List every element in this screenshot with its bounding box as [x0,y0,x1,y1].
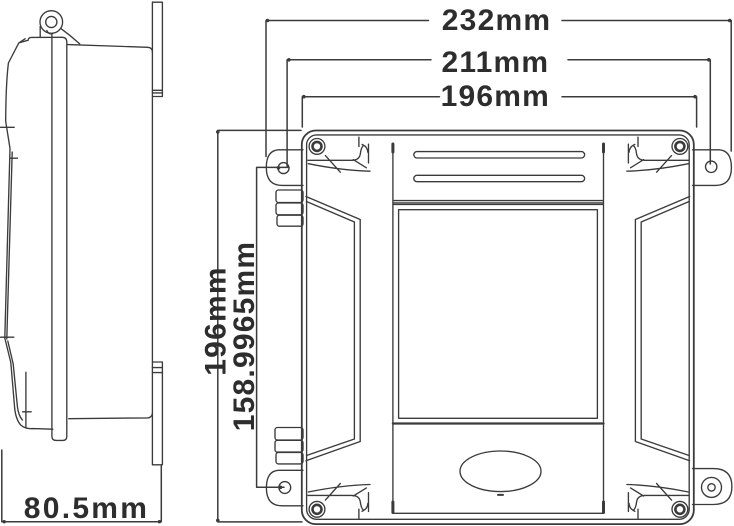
svg-text:211mm: 211mm [442,46,550,79]
svg-text:80.5mm: 80.5mm [24,492,150,525]
svg-text:196mm: 196mm [441,80,550,113]
svg-text:232mm: 232mm [442,4,551,37]
svg-text:158.9965mm: 158.9965mm [228,241,261,431]
